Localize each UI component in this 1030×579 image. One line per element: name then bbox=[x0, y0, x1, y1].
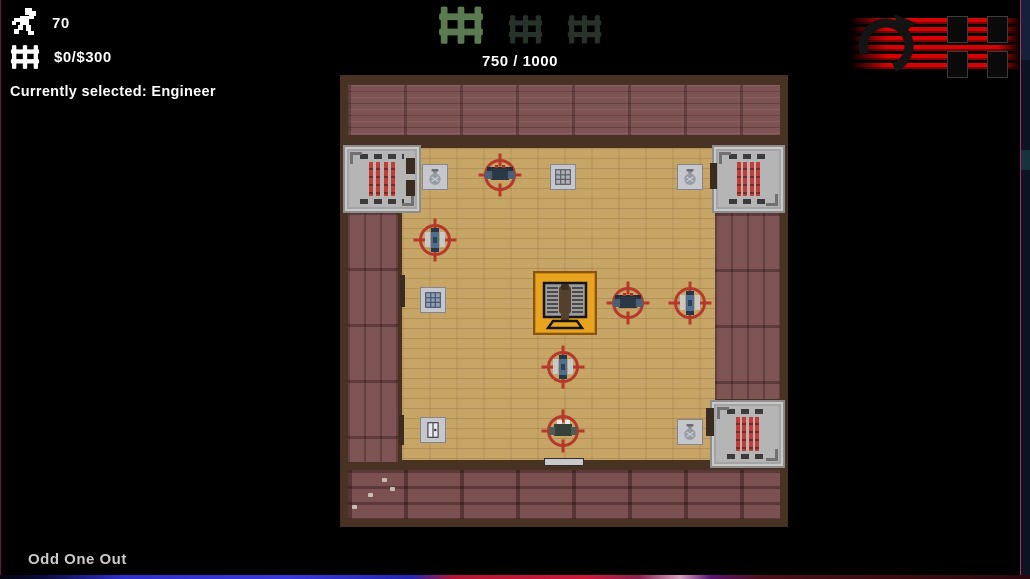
screen-edge-artifact-left bbox=[0, 0, 1, 579]
logo-h-block bbox=[947, 51, 968, 78]
screen-edge-artifact-bottom bbox=[0, 575, 1030, 579]
ch-logo bbox=[848, 6, 1022, 80]
logo-c-arrow-icon bbox=[856, 10, 918, 81]
selected-engineer[interactable] bbox=[533, 271, 597, 335]
game-screen: 70 $0/$300 Currently selected: Engineer … bbox=[0, 0, 1030, 579]
floor-tile-vent[interactable] bbox=[550, 164, 576, 190]
door-marker bbox=[544, 458, 584, 466]
door-marker bbox=[400, 275, 405, 307]
floor-strip-bottom bbox=[348, 470, 780, 519]
corner-machine[interactable] bbox=[343, 145, 421, 213]
floor-column-right bbox=[715, 213, 780, 399]
wave-indicator: 750 / 1000 bbox=[420, 10, 620, 70]
screen-edge-artifact-right bbox=[1020, 0, 1030, 579]
door-marker bbox=[399, 415, 404, 445]
game-title: Odd One Out bbox=[28, 551, 127, 568]
wave-cash-stack-icon bbox=[508, 14, 543, 50]
targeted-unit-front[interactable] bbox=[605, 280, 651, 326]
corner-machine[interactable] bbox=[712, 145, 785, 213]
wave-icons bbox=[420, 10, 620, 50]
floor-tile-money-bag[interactable] bbox=[422, 164, 448, 190]
hud-top-left: 70 $0/$300 Currently selected: Engineer bbox=[10, 6, 216, 100]
wave-cash-stack-icon bbox=[438, 5, 484, 50]
door-marker bbox=[406, 180, 415, 196]
logo-h-block bbox=[947, 16, 968, 43]
floor-column-left bbox=[348, 212, 398, 462]
logo-h-block bbox=[987, 16, 1008, 43]
targeted-unit-front[interactable] bbox=[477, 152, 523, 198]
door-marker bbox=[706, 408, 714, 436]
door-marker bbox=[710, 163, 717, 189]
floor-tile-money-bag[interactable] bbox=[677, 419, 703, 445]
game-map[interactable] bbox=[340, 75, 788, 527]
targeted-unit-front-up[interactable] bbox=[540, 408, 586, 454]
door-marker bbox=[406, 158, 415, 174]
footprint bbox=[382, 478, 387, 482]
footprint bbox=[368, 493, 373, 497]
logo-h-block bbox=[987, 51, 1008, 78]
wave-counter: 750 / 1000 bbox=[420, 53, 620, 70]
targeted-unit-side[interactable] bbox=[540, 344, 586, 390]
floor-tile-money-bag[interactable] bbox=[677, 164, 703, 190]
money-counter: $0/$300 bbox=[10, 40, 216, 74]
floor-tile-door[interactable] bbox=[420, 417, 446, 443]
corner-machine[interactable] bbox=[710, 400, 785, 468]
selected-unit-label: Currently selected: Engineer bbox=[10, 84, 216, 100]
floor-strip-top bbox=[348, 85, 780, 135]
population-counter: 70 bbox=[10, 6, 216, 40]
money-value: $0/$300 bbox=[54, 49, 112, 66]
population-value: 70 bbox=[52, 15, 70, 32]
floor-tile-panel[interactable] bbox=[420, 287, 446, 313]
targeted-unit-side[interactable] bbox=[667, 280, 713, 326]
footprint bbox=[352, 505, 357, 509]
runner-icon bbox=[10, 8, 38, 38]
footprint bbox=[390, 487, 395, 491]
targeted-unit-side[interactable] bbox=[412, 217, 458, 263]
cash-icon bbox=[10, 44, 40, 70]
wave-cash-stack-icon bbox=[567, 14, 602, 50]
